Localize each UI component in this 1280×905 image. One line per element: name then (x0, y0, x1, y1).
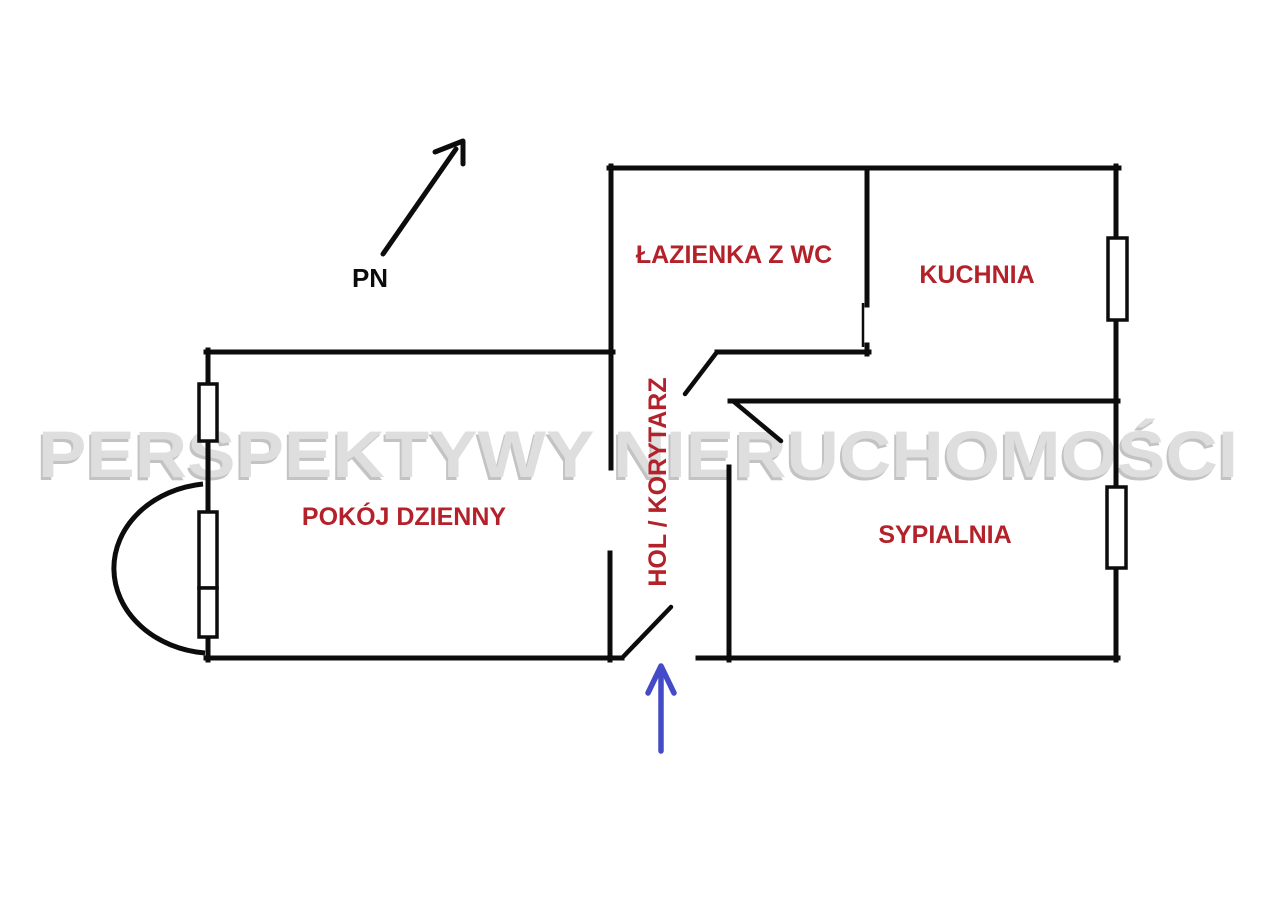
bedroom-window (1107, 487, 1126, 568)
room-label-bedroom: SYPIALNIA (878, 521, 1011, 549)
floor-plan-canvas: PERSPEKTYWY NIERUCHOMOŚCI PERSPEKTYWY NI… (0, 0, 1280, 905)
floor-plan: PERSPEKTYWY NIERUCHOMOŚCI PERSPEKTYWY NI… (0, 0, 1280, 905)
kitchen-window (1108, 238, 1127, 320)
room-labels: ŁAZIENKA Z WC KUCHNIA POKÓJ DZIENNY SYPI… (302, 241, 1035, 587)
livingroom-window-lower-b (199, 588, 217, 637)
bathroom-door-leaf (685, 352, 717, 394)
north-label: PN (352, 263, 388, 293)
entrance-indicator (648, 666, 674, 751)
livingroom-window-upper (199, 384, 217, 441)
north-arrow-shaft (383, 149, 456, 254)
livingroom-window-lower-a (199, 512, 217, 588)
room-label-hall-corridor: HOL / KORYTARZ (644, 377, 672, 586)
room-label-livingroom: POKÓJ DZIENNY (302, 501, 507, 531)
room-label-bathroom: ŁAZIENKA Z WC (636, 241, 832, 269)
balcony-door-swing-arc (114, 484, 205, 653)
entrance-door-leaf (622, 607, 671, 658)
north-indicator: PN (352, 141, 463, 293)
room-label-kitchen: KUCHNIA (919, 261, 1034, 289)
